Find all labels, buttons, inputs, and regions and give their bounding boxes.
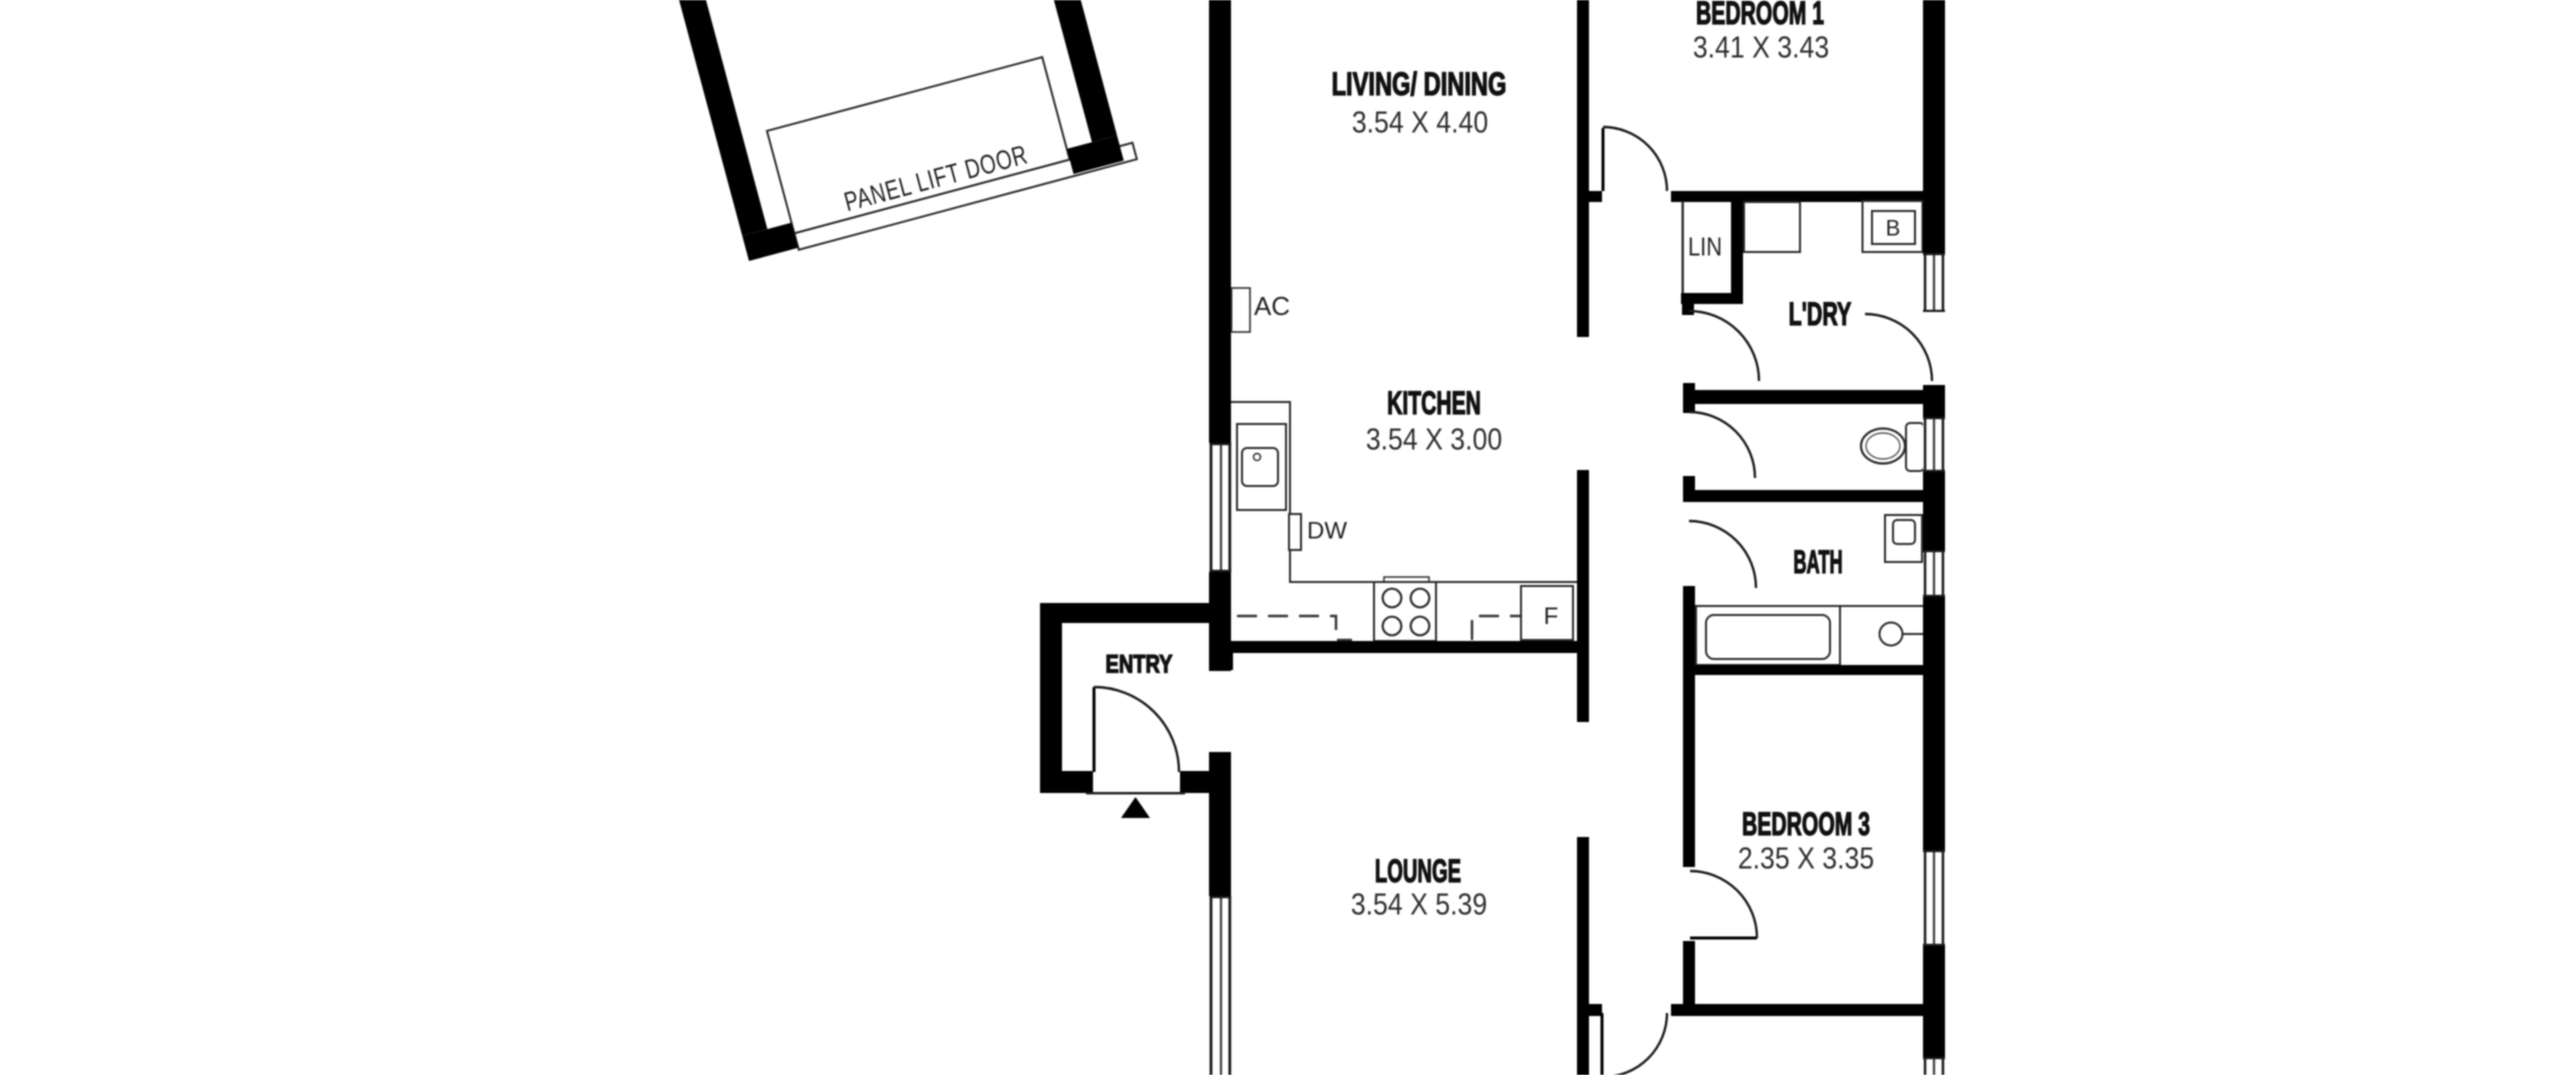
svg-text:KITCHEN: KITCHEN xyxy=(1387,385,1481,422)
svg-text:L'DRY: L'DRY xyxy=(1789,296,1852,332)
svg-text:BATH: BATH xyxy=(1793,544,1842,581)
svg-text:3.41 X 3.43: 3.41 X 3.43 xyxy=(1693,31,1829,65)
svg-text:LIN: LIN xyxy=(1688,233,1722,262)
svg-text:AC: AC xyxy=(1254,291,1290,321)
svg-text:3.54 X 3.00: 3.54 X 3.00 xyxy=(1366,423,1502,457)
svg-text:DW: DW xyxy=(1307,518,1347,545)
svg-text:BEDROOM 1: BEDROOM 1 xyxy=(1696,0,1824,31)
svg-text:BEDROOM 3: BEDROOM 3 xyxy=(1742,806,1870,843)
svg-text:LOUNGE: LOUNGE xyxy=(1375,853,1461,889)
svg-text:3.54 X 4.40: 3.54 X 4.40 xyxy=(1352,106,1488,140)
svg-text:3.54 X 5.39: 3.54 X 5.39 xyxy=(1351,888,1487,922)
svg-text:B: B xyxy=(1886,216,1901,241)
svg-text:2.35 X 3.35: 2.35 X 3.35 xyxy=(1738,842,1874,876)
svg-text:LIVING/ DINING: LIVING/ DINING xyxy=(1332,66,1507,101)
svg-text:ENTRY: ENTRY xyxy=(1105,650,1172,678)
svg-text:F: F xyxy=(1544,603,1559,630)
